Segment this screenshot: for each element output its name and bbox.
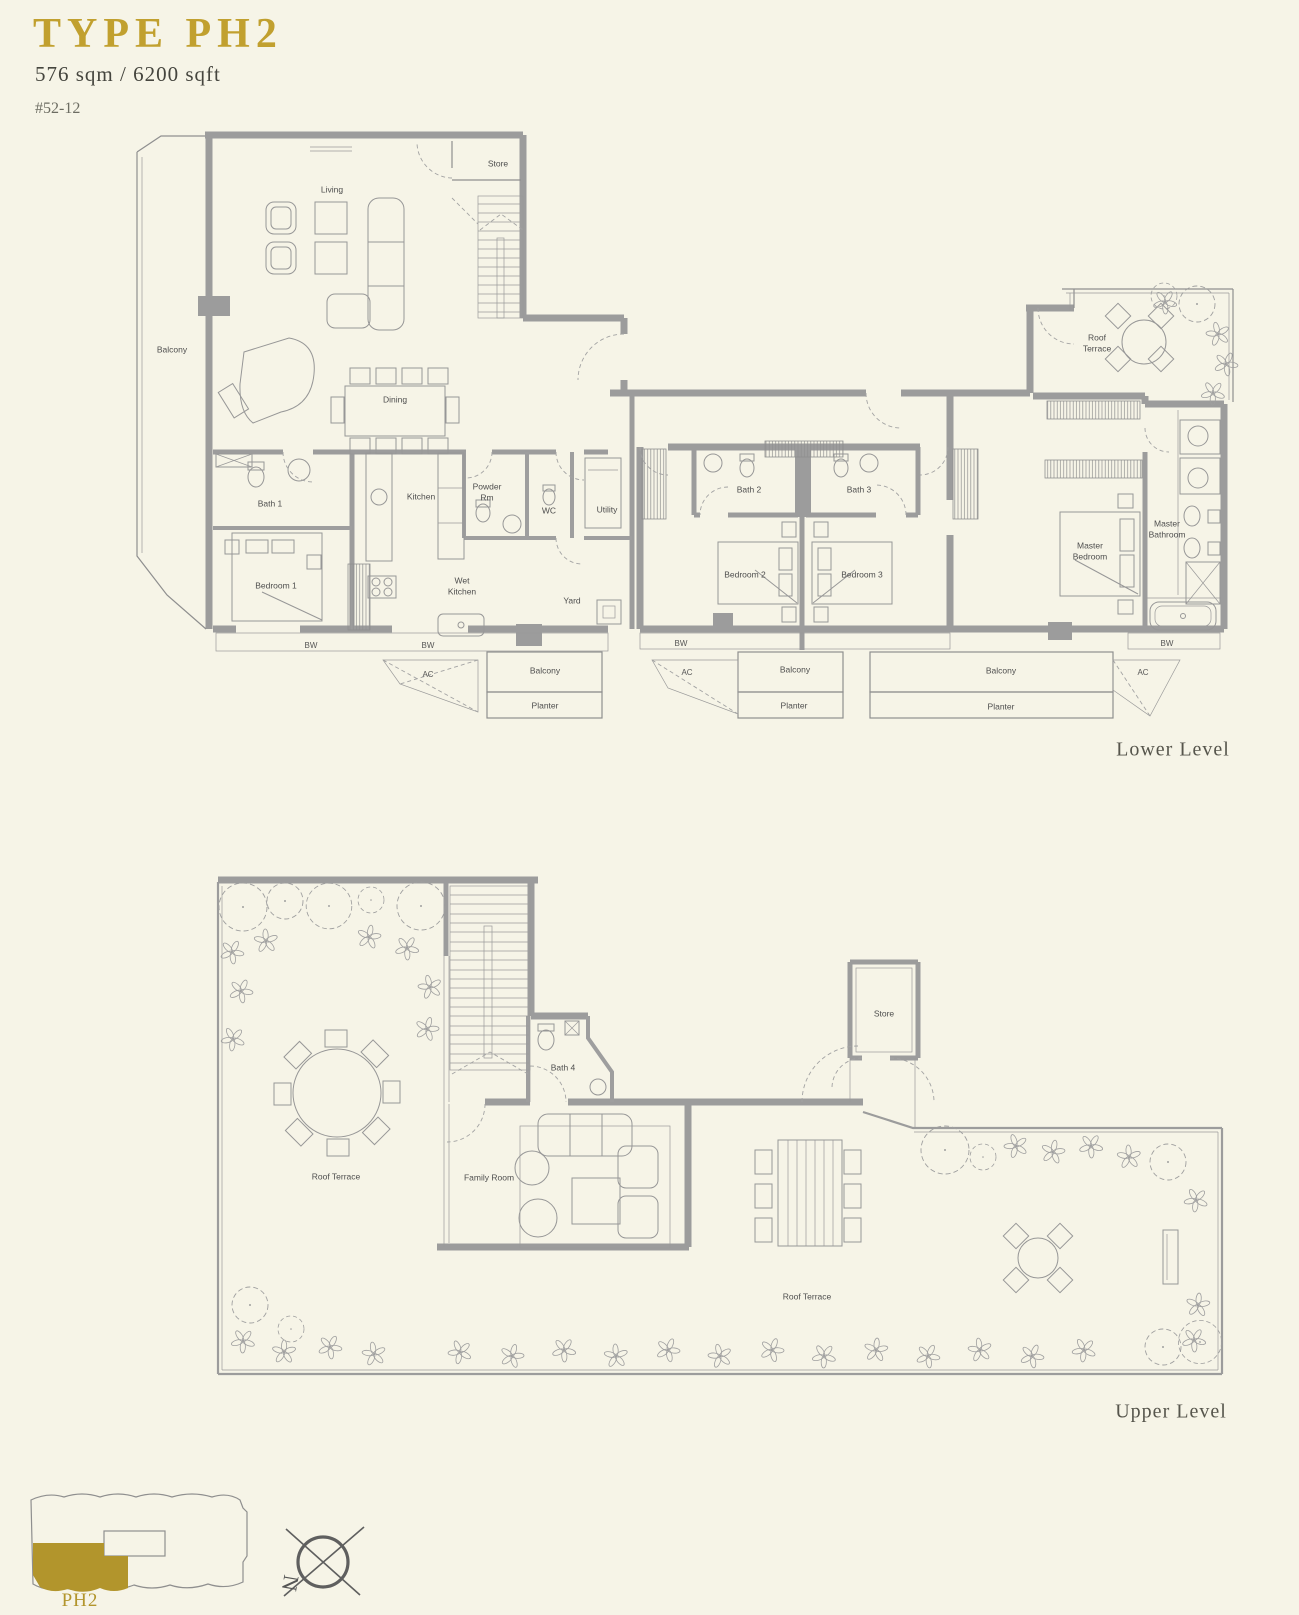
room-label-yard: Yard [563, 596, 580, 607]
lower-level-plan [137, 135, 1240, 718]
floorplan-page: N TYPE PH2 576 sqm / 6200 sqft #52-12 Li… [0, 0, 1299, 1615]
upper-family-room-furniture [515, 1114, 670, 1248]
annotation-bw-3: BW [675, 639, 688, 649]
room-label-master-bathroom: Master Bathroom [1143, 518, 1191, 539]
upper-level-caption: Upper Level [1115, 1401, 1227, 1424]
upper-bath4-fixtures [538, 1021, 606, 1095]
room-label-bath2: Bath 2 [737, 485, 762, 496]
room-label-wc: WC [542, 506, 556, 517]
annotation-planter-2: Planter [781, 701, 808, 712]
room-label-wet-kitchen: Wet Kitchen [441, 575, 483, 596]
lower-stairs [452, 196, 523, 318]
room-label-living: Living [321, 185, 343, 196]
compass-north-label: N [277, 1573, 304, 1593]
room-label-store-upper: Store [874, 1009, 894, 1020]
upper-terrace-furniture [274, 1030, 1178, 1293]
north-compass: N [277, 1527, 364, 1596]
room-label-roof-terrace-upper-right: Roof Terrace [783, 1292, 832, 1303]
room-label-bedroom1: Bedroom 1 [255, 581, 297, 592]
annotation-bw-1: BW [305, 641, 318, 651]
room-label-bedroom3: Bedroom 3 [841, 570, 883, 581]
room-label-kitchen: Kitchen [407, 492, 435, 503]
room-label-bath1: Bath 1 [258, 499, 283, 510]
page-title: TYPE PH2 [33, 10, 283, 58]
room-label-bedroom2: Bedroom 2 [724, 570, 766, 581]
unit-number-text: #52-12 [35, 100, 80, 118]
annotation-balcony-2: Balcony [780, 665, 810, 676]
lower-balcony-outline [137, 136, 230, 629]
room-label-balcony-left: Balcony [157, 345, 187, 356]
annotation-planter-3: Planter [988, 702, 1015, 713]
lower-terrace-plants [1151, 283, 1240, 409]
room-label-utility: Utility [597, 505, 618, 516]
lower-level-caption: Lower Level [1116, 739, 1230, 762]
room-label-master-bedroom: Master Bedroom [1067, 540, 1113, 561]
annotation-ac-3: AC [1137, 668, 1148, 678]
key-plan [31, 1494, 247, 1592]
room-label-roof-terrace-upper-left: Roof Terrace [312, 1172, 361, 1183]
annotation-ac-2: AC [681, 668, 692, 678]
annotation-ac-1: AC [422, 670, 433, 680]
room-label-powder-rm: Powder Rm [469, 481, 505, 502]
annotation-balcony-1: Balcony [530, 666, 560, 677]
keyplan-ph2-unit-highlight [33, 1543, 128, 1592]
room-label-bath3: Bath 3 [847, 485, 872, 496]
lower-furniture [218, 198, 1173, 646]
lower-store [452, 141, 521, 180]
room-label-roof-terrace-lower: Roof Terrace [1076, 332, 1118, 353]
upper-level-plan [218, 880, 1222, 1374]
annotation-bw-4: BW [1161, 639, 1174, 649]
annotation-planter-1: Planter [532, 701, 559, 712]
keyplan-unit-label: PH2 [62, 1590, 99, 1612]
room-label-dining: Dining [383, 395, 407, 406]
annotation-balcony-3: Balcony [986, 666, 1016, 677]
room-label-bath4: Bath 4 [551, 1063, 576, 1074]
room-label-family-room: Family Room [464, 1173, 514, 1184]
annotation-bw-2: BW [422, 641, 435, 651]
floorplan-linework: N [0, 0, 1299, 1615]
unit-area-text: 576 sqm / 6200 sqft [35, 62, 221, 87]
room-label-store: Store [488, 159, 508, 170]
upper-stairs [450, 886, 530, 1074]
